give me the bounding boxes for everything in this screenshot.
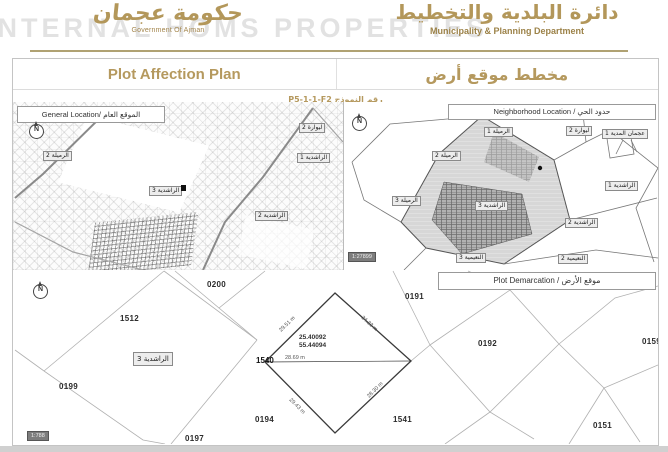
compass-icon: N	[29, 124, 44, 139]
header-divider	[30, 50, 628, 52]
neighbor-plot-number: 1512	[120, 314, 139, 323]
title-row: Plot Affection Plan مخطط موقع أرض	[13, 59, 658, 90]
neighbor-plot-number: 0199	[59, 382, 78, 391]
area-label: الراشدية 3	[475, 201, 508, 211]
scale-badge: 1:788	[27, 431, 49, 441]
area-label: الراشدية 3	[149, 186, 182, 196]
general-location-map: General Location/ الموقع العام N ليوارة …	[13, 102, 344, 270]
plot-map-shapes: 29.51 m 34.33 m 28.69 m 29.43 m 28.30 m	[13, 270, 658, 444]
neighborhood-map-header: Neighborhood Location / حدود الحي	[448, 104, 656, 120]
dimension-label: 34.33 m	[360, 315, 379, 333]
neighbor-plot-number: 0151	[593, 421, 612, 430]
ajman-logo-caption: Government Of Ajman	[88, 27, 248, 34]
bottom-strip	[0, 446, 668, 452]
ajman-government-logo: حكومة عجمان Government Of Ajman	[88, 1, 248, 34]
neighbor-plot-number: 0192	[478, 339, 497, 348]
maps-row: General Location/ الموقع العام N ليوارة …	[13, 102, 658, 271]
area-label: الراشدية 1	[605, 181, 638, 191]
page-title-ar: مخطط موقع أرض	[336, 59, 659, 89]
area-label: ليوارة 2	[566, 126, 592, 136]
compass-icon: N	[352, 116, 367, 131]
form-number-row: رقم النموذج P5-1-1-F2	[13, 89, 658, 103]
neighbor-plot-number: 0159	[642, 337, 658, 346]
plot-number: 1540	[256, 356, 274, 365]
compass-n-label: N	[30, 126, 43, 133]
compass-n-label: N	[353, 118, 366, 125]
compass-n-label: N	[34, 286, 47, 293]
area-label: الراشدية 2	[255, 211, 288, 221]
area-label: الرميلة 2	[432, 151, 461, 161]
area-label: الرميلة 3	[392, 196, 421, 206]
area-label: ليوارة 2	[299, 123, 325, 133]
neighborhood-location-map: Neighborhood Location / حدود الحي N الرم…	[344, 102, 658, 270]
dimension-label: 29.43 m	[288, 397, 307, 416]
page-title-en: Plot Affection Plan	[13, 59, 336, 89]
area-label: النعيمية 2	[558, 254, 588, 264]
plot-coordinates: 25.40092 55.44094	[299, 334, 326, 349]
document-page: INTERNAL HOMS PROPERTIES حكومة عجمان Gov…	[0, 0, 668, 452]
area-label: الرميلة 2	[43, 151, 72, 161]
municipality-logo: دائرة البلدية والتخطيط Municipality & Pl…	[382, 0, 632, 36]
municipality-logo-calligraphy: دائرة البلدية والتخطيط	[382, 0, 632, 24]
neighbor-plot-number: 0191	[405, 292, 424, 301]
dimension-label: 28.69 m	[285, 355, 305, 361]
area-label: الراشدية 1	[297, 153, 330, 163]
ajman-logo-calligraphy: حكومة عجمان	[87, 1, 250, 26]
dimension-label: 29.51 m	[278, 315, 297, 333]
neighbor-plot-number: 1541	[393, 415, 412, 424]
neighbor-plot-number: 0194	[255, 415, 274, 424]
coordinate-lon: 55.44094	[299, 342, 326, 350]
scale-badge: 1:27899	[348, 252, 376, 262]
neighbor-plot-number: 0200	[207, 280, 226, 289]
municipality-logo-caption: Municipality & Planning Department	[382, 26, 632, 36]
general-map-header: General Location/ الموقع العام	[17, 106, 165, 123]
area-label: الراشدية 2	[565, 218, 598, 228]
dimension-label: 28.30 m	[366, 381, 385, 400]
plot-demarcation-map: 29.51 m 34.33 m 28.69 m 29.43 m 28.30 m …	[13, 270, 658, 444]
poi-marker-icon	[181, 185, 186, 191]
plot-map-header: Plot Demarcation / موقع الأرض	[438, 272, 656, 290]
neighbor-plot-number: 0197	[185, 434, 204, 443]
area-label: عجمان المدية 1	[602, 129, 648, 139]
coordinate-lat: 25.40092	[299, 334, 326, 342]
area-label: النعيمية 3	[456, 253, 486, 263]
area-label: الرميلة 1	[484, 127, 513, 137]
compass-icon: N	[33, 284, 48, 299]
district-label: الراشدية 3	[133, 352, 173, 366]
plan-document-frame: Plot Affection Plan مخطط موقع أرض رقم ال…	[12, 58, 659, 446]
